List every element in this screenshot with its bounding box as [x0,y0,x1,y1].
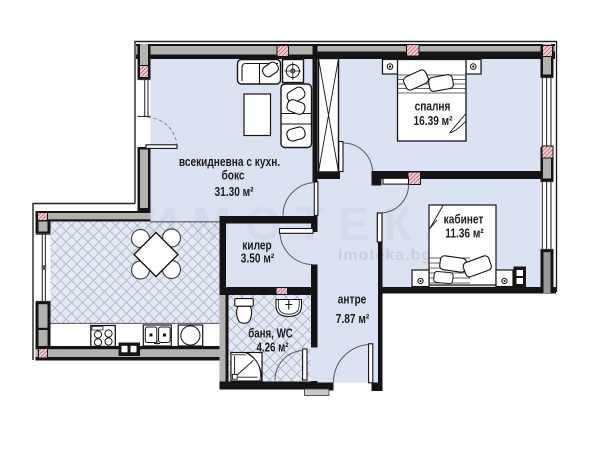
svg-text:3.50 м²: 3.50 м² [241,251,274,265]
svg-text:бокс: бокс [221,168,244,182]
svg-text:баня, WC: баня, WC [248,327,293,340]
svg-text:кабинет: кабинет [444,212,484,226]
svg-text:7.87 м²: 7.87 м² [336,312,369,326]
svg-text:31.30 м²: 31.30 м² [214,185,253,199]
svg-text:11.36 м²: 11.36 м² [445,226,484,240]
svg-text:спалня: спалня [415,99,451,113]
svg-text:imoteka.bg: imoteka.bg [338,247,431,264]
svg-text:всекидневна с кухн.: всекидневна с кухн. [179,155,280,169]
svg-text:антре: антре [338,292,367,306]
svg-text:16.39 м²: 16.39 м² [413,114,452,128]
svg-text:4.26 м²: 4.26 м² [256,341,288,354]
